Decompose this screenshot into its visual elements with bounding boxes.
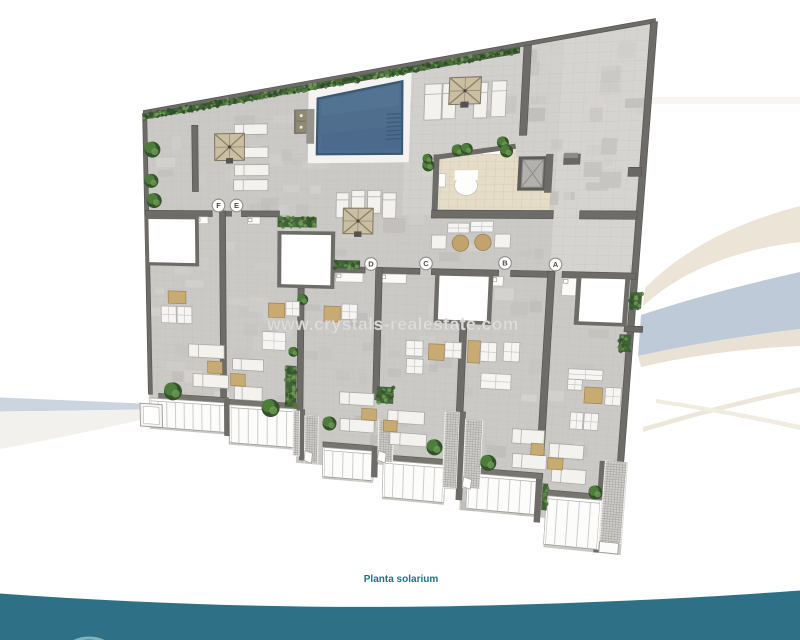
svg-text:E: E bbox=[234, 201, 239, 210]
svg-text:A: A bbox=[553, 260, 559, 269]
svg-text:B: B bbox=[502, 259, 508, 268]
svg-text:C: C bbox=[423, 259, 429, 268]
svg-text:www.crystals-realestate.com: www.crystals-realestate.com bbox=[266, 314, 519, 334]
svg-text:D: D bbox=[368, 260, 374, 269]
svg-text:F: F bbox=[216, 201, 221, 210]
svg-text:Planta solarium: Planta solarium bbox=[364, 574, 439, 585]
